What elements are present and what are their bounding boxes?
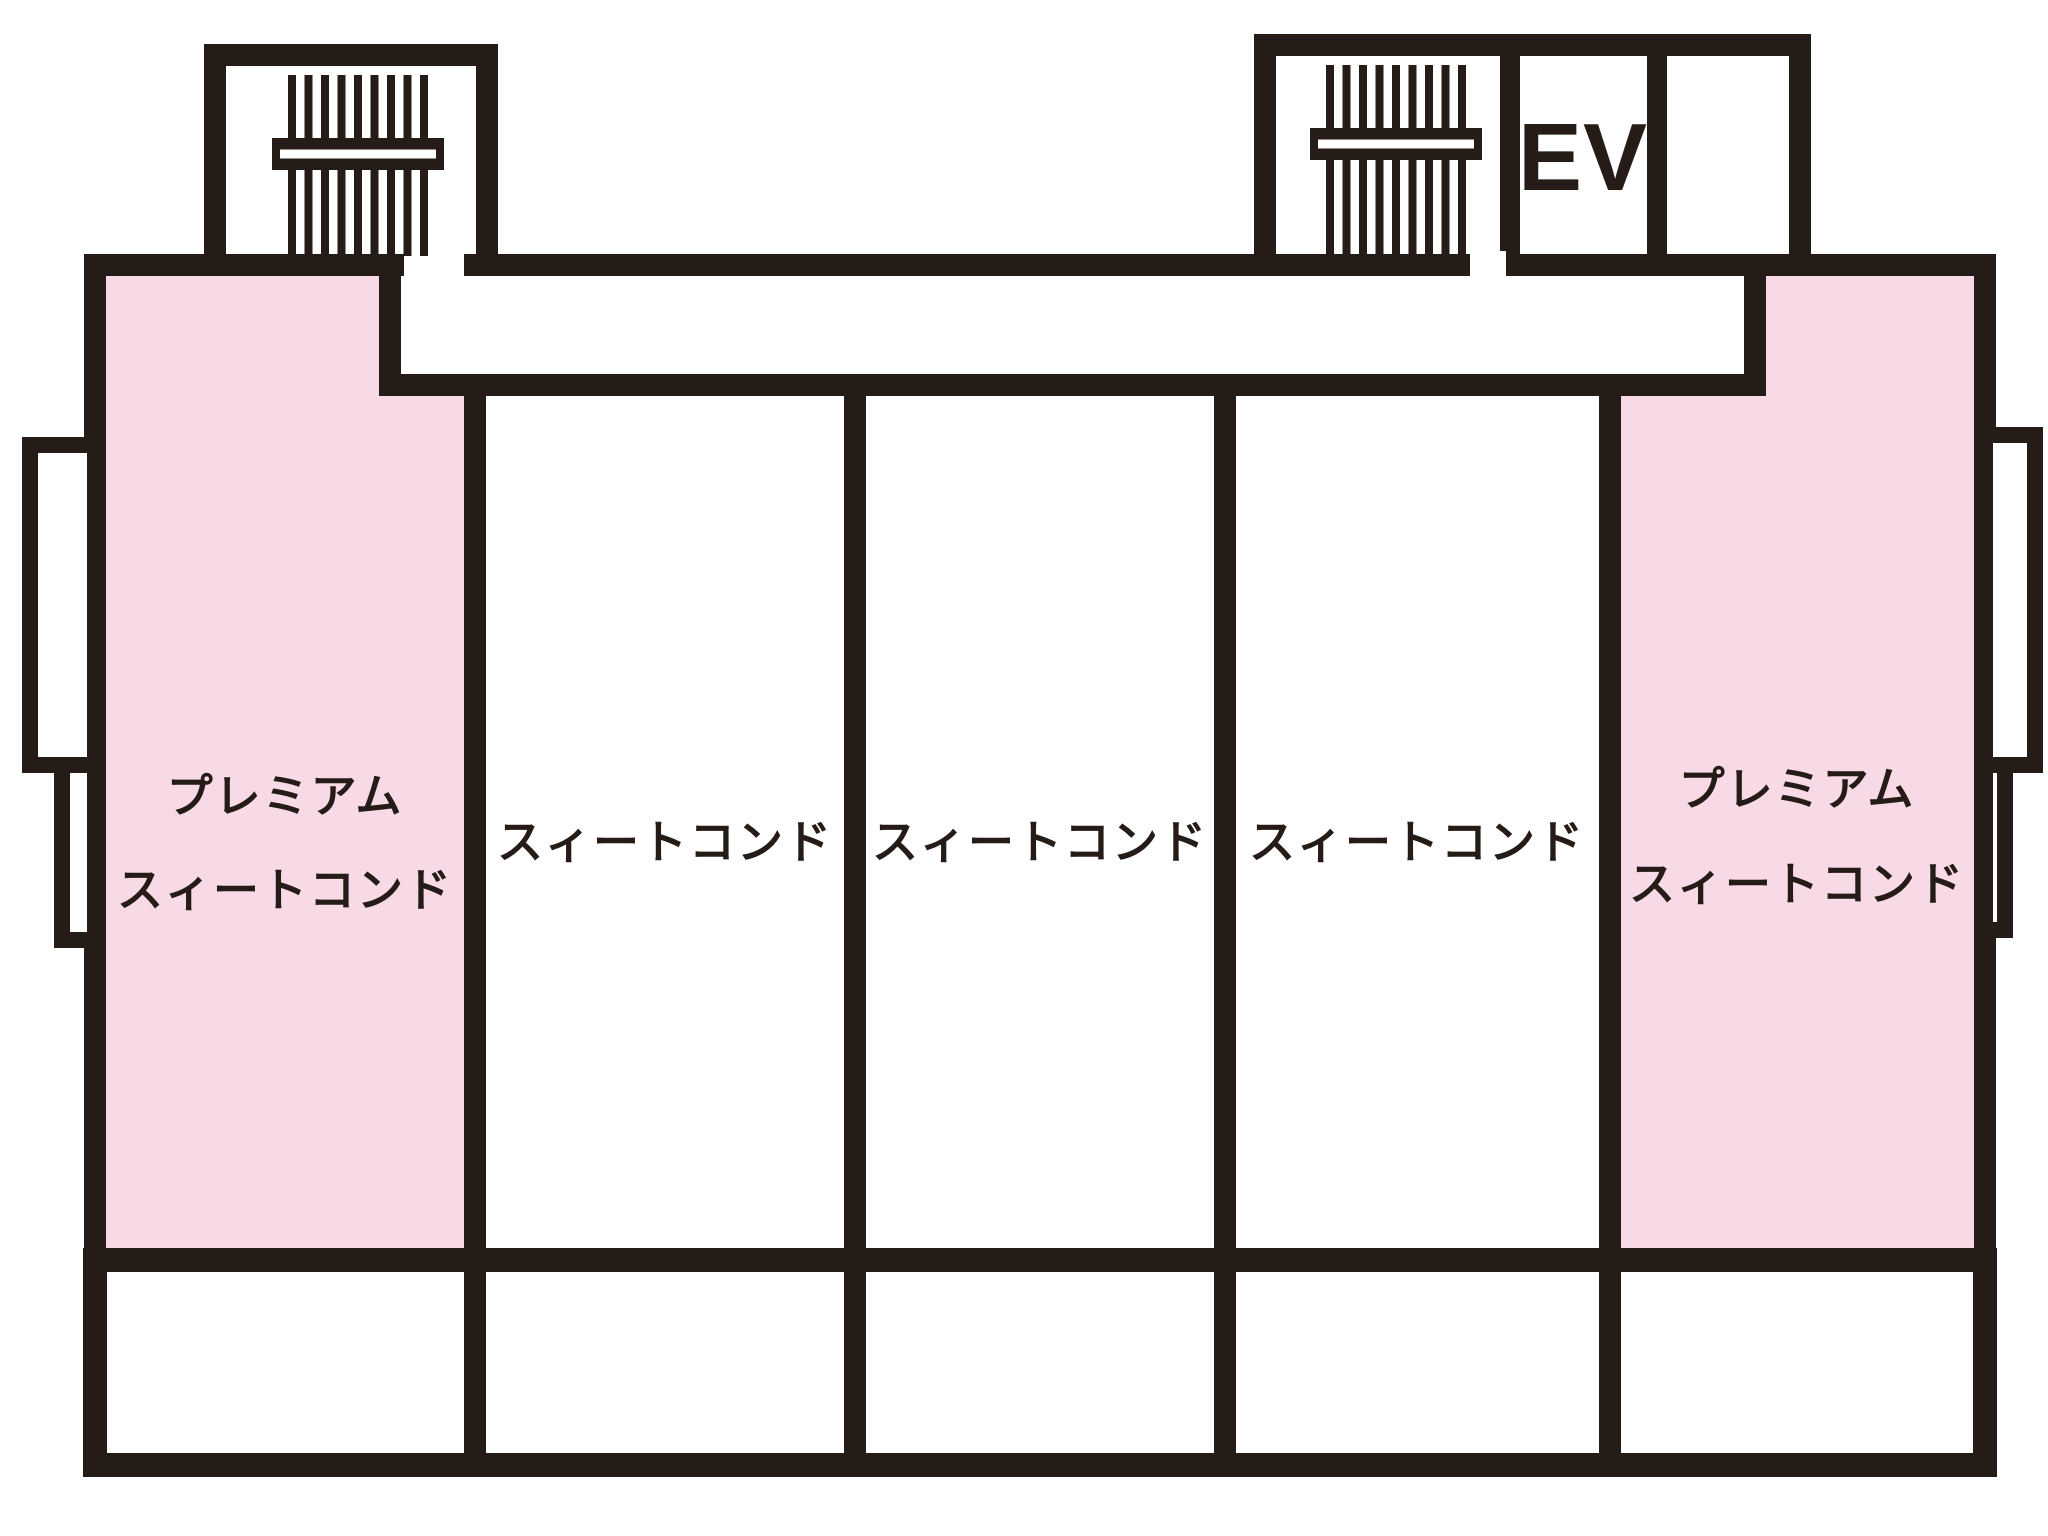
room-premium-west [95, 265, 475, 1260]
floor-plan-canvas: プレミアム スィートコンド スィートコンド スィートコンド スィートコンド プレ… [0, 0, 2048, 1536]
stair-doorway-west [404, 251, 464, 279]
room-suite-2-label: スィートコンド [872, 816, 1208, 868]
room-suite-3-label: スィートコンド [1249, 816, 1585, 868]
bay-notch-west-large [30, 445, 95, 765]
bay-notch-east-large [1985, 435, 2035, 765]
bay-notch-west-small [62, 765, 95, 940]
bay-notch-east-small [1985, 765, 2005, 930]
room-premium-east-label-line1: プレミアム [1679, 763, 1916, 815]
balcony-strip [95, 1260, 1985, 1465]
floor-plan: プレミアム スィートコンド スィートコンド スィートコンド スィートコンド プレ… [0, 0, 2048, 1536]
elevator-label: EV [1518, 104, 1648, 211]
room-suite-1-label: スィートコンド [497, 816, 833, 868]
stair-doorway-east [1470, 251, 1506, 279]
room-premium-east-label-line2: スィートコンド [1629, 858, 1965, 910]
room-premium-west-label-line1: プレミアム [167, 770, 404, 822]
room-premium-west-label-line2: スィートコンド [117, 864, 453, 916]
